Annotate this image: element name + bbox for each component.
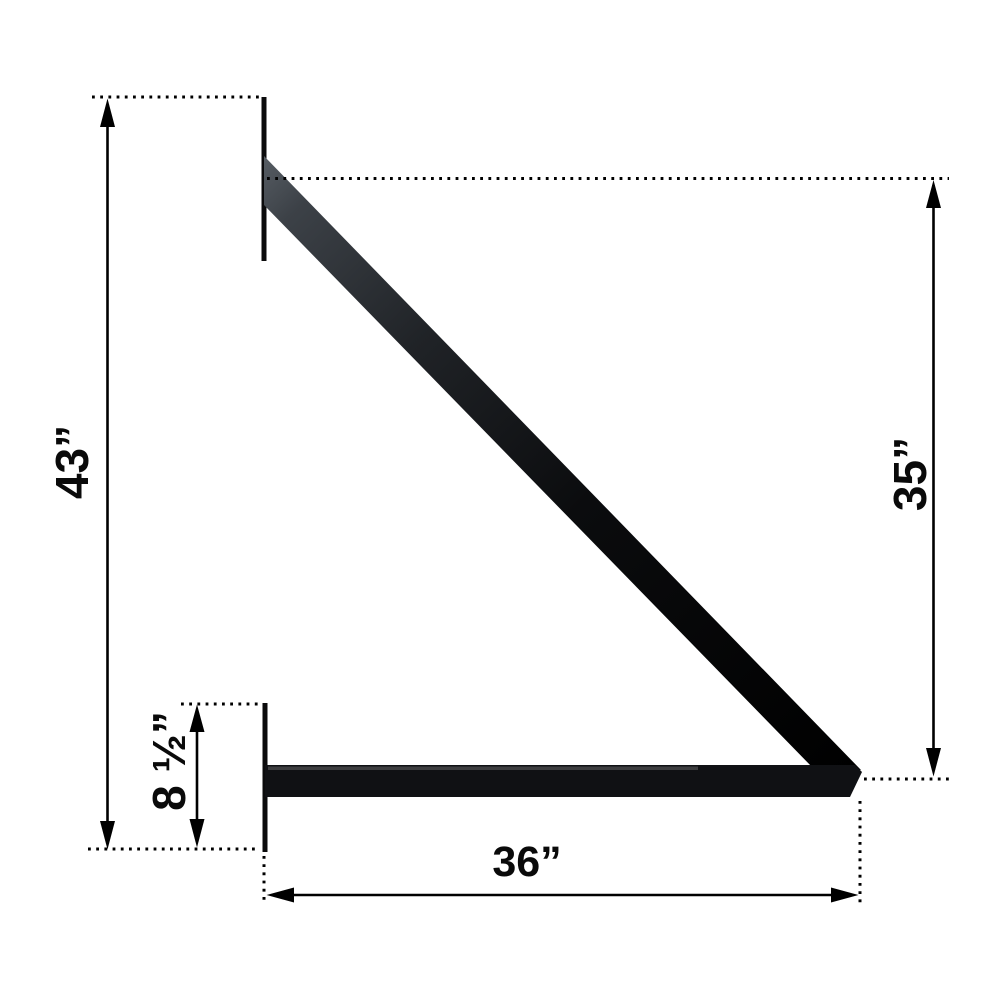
- dimension-labels: 43” 8 ½” 35” 36”: [46, 425, 936, 886]
- dimension-label-wall-plate-height: 8 ½”: [143, 711, 195, 811]
- arrowhead-down-icon: [100, 821, 115, 850]
- arrowhead-right-icon: [831, 888, 859, 903]
- dimension-label-brace-drop: 35”: [884, 437, 936, 511]
- arrowhead-up-icon: [926, 180, 941, 208]
- diagram-canvas: 43” 8 ½” 35” 36”: [0, 0, 1000, 1000]
- dimension-label-arm-length: 36”: [492, 838, 561, 886]
- arrowhead-down-icon: [190, 819, 205, 848]
- bracket-illustration: [262, 97, 863, 852]
- bracket-arm-highlight: [268, 767, 698, 771]
- arrowhead-left-icon: [267, 888, 295, 903]
- bracket-diagonal-brace: [264, 156, 861, 770]
- arrowhead-down-icon: [926, 748, 941, 777]
- dimension-label-overall-height: 43”: [46, 425, 98, 499]
- bracket-dimension-drawing: 43” 8 ½” 35” 36”: [0, 0, 1000, 1000]
- arrowhead-up-icon: [100, 99, 115, 128]
